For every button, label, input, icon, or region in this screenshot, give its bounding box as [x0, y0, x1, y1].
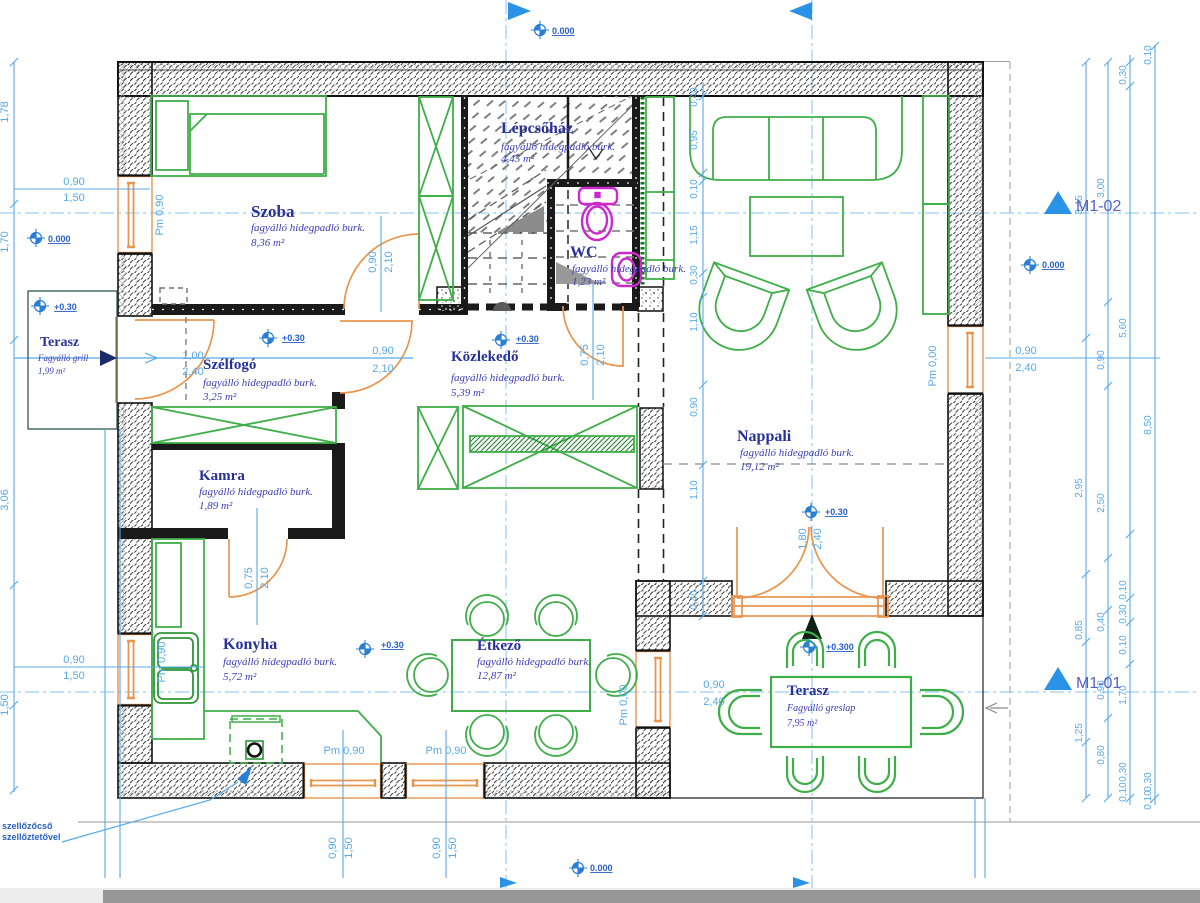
svg-text:1,50: 1,50	[0, 694, 11, 715]
svg-text:0,95: 0,95	[689, 130, 700, 150]
svg-text:0,90: 0,90	[1096, 350, 1107, 370]
svg-text:fagyálló hidegpadló burk.: fagyálló hidegpadló burk.	[199, 486, 313, 498]
svg-text:2,95: 2,95	[1074, 478, 1085, 498]
svg-text:Pm 0,00: Pm 0,00	[927, 346, 939, 387]
svg-text:7,95 m²: 7,95 m²	[787, 718, 818, 729]
svg-text:2,10: 2,10	[595, 344, 607, 365]
svg-text:2,10: 2,10	[372, 363, 393, 375]
svg-text:0,90: 0,90	[372, 345, 393, 357]
svg-text:0,10: 0,10	[1118, 782, 1129, 802]
svg-text:fagyálló hidegpadló burk.: fagyálló hidegpadló burk.	[477, 656, 591, 668]
svg-text:1,50: 1,50	[343, 837, 355, 858]
svg-text:0,30: 0,30	[1118, 604, 1129, 624]
svg-text:1,10: 1,10	[689, 312, 700, 332]
svg-text:1,25: 1,25	[1074, 723, 1085, 743]
svg-text:fagyálló hidegpadló burk.: fagyálló hidegpadló burk.	[501, 141, 615, 153]
svg-text:+0.30: +0.30	[825, 507, 848, 517]
svg-text:1,50: 1,50	[447, 837, 459, 858]
svg-text:+0.300: +0.300	[826, 642, 854, 652]
svg-text:2,40: 2,40	[703, 696, 724, 708]
svg-text:+0.30: +0.30	[516, 334, 539, 344]
svg-text:2,40: 2,40	[1015, 362, 1036, 374]
svg-text:0,40: 0,40	[1096, 612, 1107, 632]
svg-text:Fagyálló grill: Fagyálló grill	[37, 353, 89, 363]
svg-text:0,10: 0,10	[689, 179, 700, 199]
svg-text:5,60: 5,60	[1118, 318, 1129, 338]
svg-text:Lépcsőház: Lépcsőház	[501, 120, 573, 137]
svg-text:0,40: 0,40	[689, 87, 700, 107]
svg-text:0,80: 0,80	[1096, 745, 1107, 765]
svg-text:0,90: 0,90	[367, 251, 379, 272]
svg-text:0,10: 0,10	[1118, 635, 1129, 655]
svg-text:0,90: 0,90	[63, 654, 84, 666]
svg-text:2,40: 2,40	[182, 366, 203, 378]
svg-text:fagyálló hidegpadló burk.: fagyálló hidegpadló burk.	[740, 447, 854, 459]
svg-text:fagyálló hidegpadló burk.: fagyálló hidegpadló burk.	[203, 377, 317, 389]
svg-text:0.000: 0.000	[1042, 260, 1065, 270]
svg-text:1,89 m²: 1,89 m²	[199, 500, 233, 512]
svg-text:0,90: 0,90	[1015, 345, 1036, 357]
svg-text:Nappali: Nappali	[737, 428, 792, 445]
svg-text:Pm 0,90: Pm 0,90	[324, 745, 365, 757]
svg-text:3,06: 3,06	[0, 489, 11, 510]
svg-text:+0.30: +0.30	[282, 333, 305, 343]
svg-text:1,50: 1,50	[63, 192, 84, 204]
svg-text:2,10: 2,10	[383, 251, 395, 272]
svg-text:0,90: 0,90	[327, 837, 339, 858]
svg-text:Fagyálló greslap: Fagyálló greslap	[786, 703, 855, 714]
svg-text:0.000: 0.000	[552, 26, 575, 36]
svg-text:0,75: 0,75	[243, 567, 255, 588]
svg-text:1,50: 1,50	[63, 670, 84, 682]
svg-text:Terasz: Terasz	[787, 683, 829, 699]
svg-text:0,90: 0,90	[431, 837, 443, 858]
svg-text:Pm 0,90: Pm 0,90	[154, 195, 166, 236]
svg-text:3,25 m²: 3,25 m²	[202, 391, 237, 403]
svg-text:0,10: 0,10	[1143, 790, 1154, 810]
svg-text:Pm 0,90: Pm 0,90	[156, 642, 168, 683]
svg-text:M1-02: M1-02	[1076, 198, 1121, 215]
svg-text:1,00: 1,00	[182, 350, 203, 362]
svg-text:1,78: 1,78	[0, 101, 11, 122]
svg-text:0,30: 0,30	[689, 265, 700, 285]
svg-text:4,45 m²: 4,45 m²	[501, 153, 535, 165]
svg-text:+0.30: +0.30	[54, 302, 77, 312]
svg-text:8,36 m²: 8,36 m²	[251, 237, 285, 249]
svg-text:Terasz: Terasz	[40, 335, 79, 350]
svg-text:Közlekedő: Közlekedő	[451, 349, 519, 365]
svg-text:0.000: 0.000	[590, 863, 613, 873]
svg-text:szellőztetővel: szellőztetővel	[2, 832, 61, 842]
svg-text:fagyálló hidegpadló burk.: fagyálló hidegpadló burk.	[572, 263, 686, 275]
svg-text:Kamra: Kamra	[199, 468, 245, 484]
svg-text:+0.30: +0.30	[381, 640, 404, 650]
svg-text:WC: WC	[570, 244, 598, 261]
svg-text:0,75: 0,75	[579, 344, 591, 365]
svg-text:0,40: 0,40	[689, 590, 700, 610]
svg-text:Szoba: Szoba	[251, 202, 295, 221]
svg-text:0,85: 0,85	[1074, 620, 1085, 640]
svg-text:5,72 m²: 5,72 m²	[223, 671, 257, 683]
svg-text:1,23 m²: 1,23 m²	[572, 276, 606, 288]
svg-text:12,87 m²: 12,87 m²	[477, 670, 516, 682]
svg-text:0,30: 0,30	[1118, 762, 1129, 782]
svg-text:0,30: 0,30	[1143, 772, 1154, 792]
svg-text:2,40: 2,40	[812, 528, 824, 549]
svg-text:1,80: 1,80	[797, 528, 809, 549]
svg-text:szellőzőcső: szellőzőcső	[2, 821, 53, 831]
svg-text:0,10: 0,10	[1143, 45, 1154, 65]
svg-text:0,90: 0,90	[63, 176, 84, 188]
svg-text:0.000: 0.000	[48, 234, 71, 244]
svg-text:0,10: 0,10	[1118, 580, 1129, 600]
svg-text:0,30: 0,30	[1118, 65, 1129, 85]
svg-text:0,90: 0,90	[689, 397, 700, 417]
svg-text:M1-01: M1-01	[1076, 675, 1121, 692]
svg-text:2,50: 2,50	[1096, 493, 1107, 513]
svg-text:19,12 m²: 19,12 m²	[740, 461, 779, 473]
svg-text:Étkező: Étkező	[477, 637, 522, 654]
svg-text:8,50: 8,50	[1143, 415, 1154, 435]
svg-text:Pm 0,00: Pm 0,00	[618, 685, 630, 726]
svg-text:Szélfogó: Szélfogó	[203, 357, 256, 373]
svg-text:1,15: 1,15	[689, 225, 700, 245]
svg-text:3,00: 3,00	[1096, 178, 1107, 198]
svg-text:1,70: 1,70	[0, 231, 11, 252]
svg-text:1,99 m²: 1,99 m²	[38, 366, 65, 376]
svg-text:fagyálló hidegpadló burk.: fagyálló hidegpadló burk.	[251, 222, 365, 234]
svg-text:5,39 m²: 5,39 m²	[451, 387, 485, 399]
svg-text:0,90: 0,90	[703, 679, 724, 691]
svg-text:Konyha: Konyha	[223, 636, 277, 653]
svg-text:1,10: 1,10	[689, 480, 700, 500]
svg-text:2,10: 2,10	[259, 567, 271, 588]
svg-text:fagyálló hidegpadló burk.: fagyálló hidegpadló burk.	[223, 656, 337, 668]
svg-text:fagyálló hidegpadló burk.: fagyálló hidegpadló burk.	[451, 372, 565, 384]
